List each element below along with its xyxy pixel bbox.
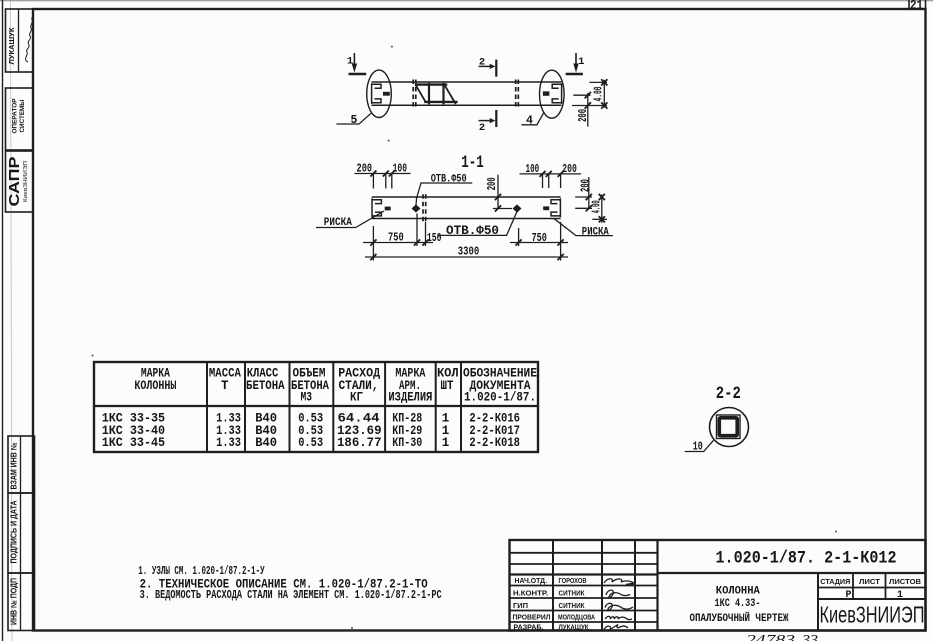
svg-text:МОЛОДЦОВА: МОЛОДЦОВА bbox=[558, 613, 595, 622]
svg-text:ЛУКАШУК: ЛУКАШУК bbox=[559, 622, 589, 631]
svg-text:2-2: 2-2 bbox=[716, 384, 741, 404]
svg-text:1КС 4.33-: 1КС 4.33- bbox=[715, 598, 761, 610]
svg-text:0.53: 0.53 bbox=[298, 436, 323, 450]
svg-text:ОПАЛУБОЧНЫЙ ЧЕРТЕЖ: ОПАЛУБОЧНЫЙ ЧЕРТЕЖ bbox=[690, 611, 789, 625]
svg-text:1.33: 1.33 bbox=[216, 436, 241, 450]
svg-text:ОТВ.Ф50: ОТВ.Ф50 bbox=[431, 174, 467, 186]
svg-text:4.00: 4.00 bbox=[592, 86, 605, 101]
svg-text:10: 10 bbox=[693, 441, 703, 454]
svg-text:3. ВЕДОМОСТЬ РАСХОДА СТАЛИ НА: 3. ВЕДОМОСТЬ РАСХОДА СТАЛИ НА ЭЛЕМЕНТ СМ… bbox=[140, 588, 442, 602]
svg-text:ОПЕРАТОР: ОПЕРАТОР bbox=[12, 98, 19, 133]
svg-text:ГОРОХОВ: ГОРОХОВ bbox=[559, 576, 587, 585]
svg-text:750: 750 bbox=[388, 230, 404, 244]
svg-text:СИТНИК: СИТНИК bbox=[559, 589, 585, 598]
svg-text:200: 200 bbox=[562, 162, 577, 176]
svg-text:1: 1 bbox=[347, 56, 353, 68]
svg-text:КОЛОННЫ: КОЛОННЫ bbox=[134, 379, 176, 393]
svg-text:5: 5 bbox=[351, 114, 358, 127]
svg-text:КиевЗНИИЭП: КиевЗНИИЭП bbox=[820, 602, 925, 628]
svg-text:РАЗРАБ.: РАЗРАБ. bbox=[514, 622, 544, 631]
svg-text:ИНВ № ПОДП: ИНВ № ПОДП bbox=[10, 578, 19, 625]
svg-text:ПОДПИСЬ И ДАТА: ПОДПИСЬ И ДАТА bbox=[10, 500, 19, 563]
svg-text:ШТ: ШТ bbox=[441, 379, 454, 393]
svg-text:НАЧ.ОТД.: НАЧ.ОТД. bbox=[515, 576, 548, 585]
svg-text:4: 4 bbox=[526, 115, 533, 128]
svg-text:1.020-1/87.: 1.020-1/87. bbox=[464, 390, 536, 404]
svg-text:200: 200 bbox=[357, 162, 373, 176]
svg-text:1: 1 bbox=[897, 590, 903, 601]
svg-text:СИТНИК: СИТНИК bbox=[559, 601, 585, 610]
svg-text:ПРОВЕРИЛ: ПРОВЕРИЛ bbox=[513, 613, 551, 622]
svg-text:100: 100 bbox=[526, 162, 540, 176]
svg-text:КиевЗНИИЭП: КиевЗНИИЭП bbox=[23, 161, 29, 202]
svg-text:1: 1 bbox=[578, 56, 584, 68]
svg-text:3300: 3300 bbox=[458, 244, 479, 258]
svg-text:2-2-К018: 2-2-К018 bbox=[469, 436, 520, 450]
svg-text:СТАДИЯ: СТАДИЯ bbox=[820, 577, 850, 586]
svg-text:РИСКА: РИСКА bbox=[582, 226, 609, 238]
svg-text:Н.КОНТР.: Н.КОНТР. bbox=[513, 589, 548, 598]
svg-text:1-1: 1-1 bbox=[461, 153, 484, 173]
svg-text:1.020-1/87. 2-1-К012: 1.020-1/87. 2-1-К012 bbox=[716, 549, 897, 569]
svg-text:ИЗДЕЛИЯ: ИЗДЕЛИЯ bbox=[388, 390, 432, 404]
svg-text:КП-30: КП-30 bbox=[392, 436, 422, 450]
svg-text:100: 100 bbox=[393, 162, 407, 176]
svg-text:КОЛОННА: КОЛОННА bbox=[716, 586, 760, 598]
svg-text:ГИП: ГИП bbox=[513, 601, 528, 610]
svg-text:Р: Р bbox=[845, 590, 851, 601]
svg-text:186.77: 186.77 bbox=[337, 436, 382, 450]
svg-text:Т: Т bbox=[221, 379, 229, 393]
svg-text:24783: 24783 bbox=[746, 632, 795, 641]
svg-text:1: 1 bbox=[442, 436, 450, 450]
svg-text:750: 750 bbox=[532, 231, 547, 245]
svg-text:200: 200 bbox=[577, 109, 590, 122]
svg-text:САПР: САПР bbox=[7, 156, 23, 206]
svg-text:1КС 33-45: 1КС 33-45 bbox=[102, 436, 165, 450]
svg-text:В40: В40 bbox=[255, 436, 277, 450]
svg-text:200: 200 bbox=[486, 177, 499, 190]
svg-text:БЕТОНА: БЕТОНА bbox=[246, 379, 285, 393]
svg-text:КГ: КГ bbox=[350, 390, 363, 404]
svg-text:ЛИСТОВ: ЛИСТОВ bbox=[889, 577, 922, 586]
svg-text:ВЗАМ ИНВ №: ВЗАМ ИНВ № bbox=[10, 442, 19, 489]
svg-text:2: 2 bbox=[479, 122, 485, 134]
svg-text:150: 150 bbox=[427, 231, 442, 245]
svg-text:200: 200 bbox=[579, 179, 592, 192]
svg-text:33: 33 bbox=[801, 632, 818, 641]
svg-text:СИСТЕМЫ: СИСТЕМЫ bbox=[19, 99, 26, 132]
svg-text:ЛИСТ: ЛИСТ bbox=[859, 577, 880, 586]
svg-text:М3: М3 bbox=[301, 390, 313, 404]
svg-text:4.00: 4.00 bbox=[590, 200, 603, 213]
svg-text:ЛУКАШУК: ЛУКАШУК bbox=[7, 27, 16, 64]
svg-text:21: 21 bbox=[910, 0, 923, 14]
